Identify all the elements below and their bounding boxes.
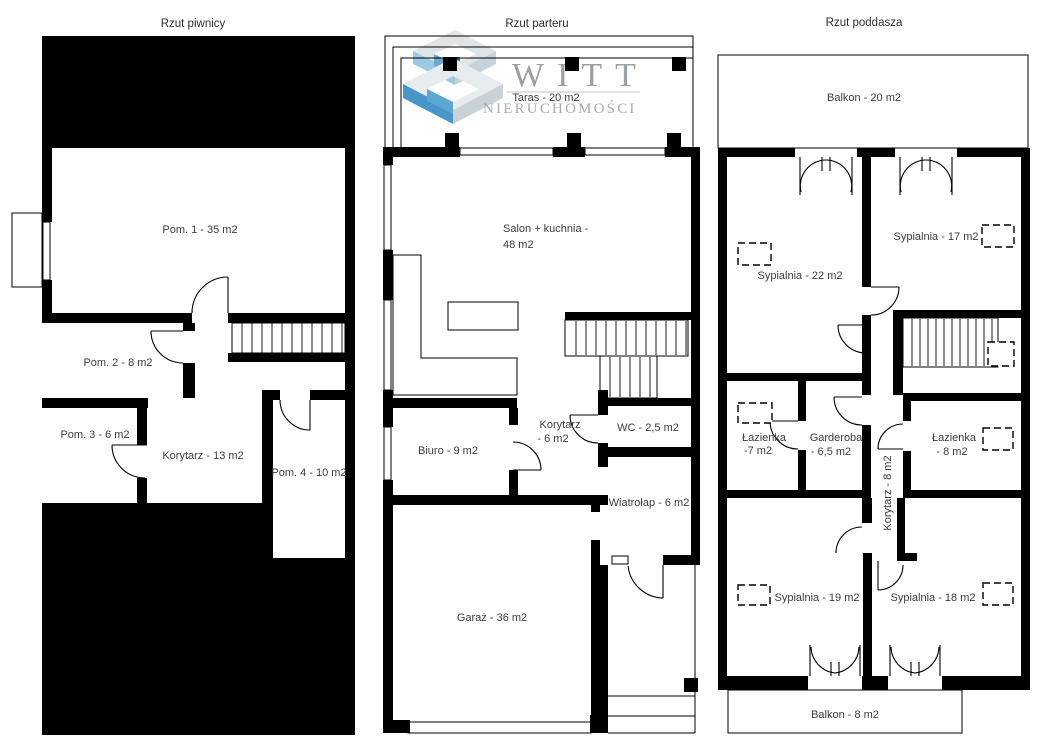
attic-skylights bbox=[738, 225, 1014, 605]
room-label-taras: Taras - 20 m2 bbox=[512, 92, 579, 104]
room-label-garderoba-line1: Garderoba bbox=[810, 432, 863, 444]
ground-title: Rzut parteru bbox=[505, 18, 568, 30]
room-label-pom1: Pom. 1 - 35 m2 bbox=[162, 224, 237, 236]
room-label-sypialnia19: Sypialnia - 19 m2 bbox=[775, 592, 860, 604]
attic-floorplan: Balkon - 20 m2 Sypialnia - 22 m2 Sypialn… bbox=[718, 55, 1030, 733]
attic-title: Rzut poddasza bbox=[826, 17, 903, 29]
basement-title: Rzut piwnicy bbox=[161, 18, 226, 30]
room-label-salon-line2: 48 m2 bbox=[503, 239, 534, 251]
ground-floorplan: Taras - 20 m2 Salon + kuchnia - 48 m2 Bi… bbox=[383, 36, 700, 733]
room-label-balkon-bottom: Balkon - 8 m2 bbox=[811, 709, 879, 721]
room-label-sypialnia22: Sypialnia - 22 m2 bbox=[758, 270, 843, 282]
witt-logo: WITT NIERUCHOMOŚCI bbox=[403, 30, 649, 124]
room-label-sypialnia17: Sypialnia - 17 m2 bbox=[894, 231, 979, 243]
room-label-garaz: Garaż - 36 m2 bbox=[457, 612, 527, 624]
floorplan-drawing: WITT NIERUCHOMOŚCI Rzut piwnicy Rzut par… bbox=[0, 0, 1047, 742]
room-label-balkon-top: Balkon - 20 m2 bbox=[827, 92, 901, 104]
room-label-korytarz8: Korytarz - 8 m2 bbox=[882, 455, 894, 530]
room-label-wc: WC - 2,5 m2 bbox=[617, 422, 679, 434]
attic-room-labels: Balkon - 20 m2 Sypialnia - 22 m2 Sypialn… bbox=[742, 92, 979, 721]
room-label-sypialnia18: Sypialnia - 18 m2 bbox=[891, 592, 976, 604]
room-label-korytarz6-line2: - 6 m2 bbox=[537, 433, 568, 445]
room-label-lazienka8-line1: Łazienka bbox=[932, 432, 977, 444]
basement-window bbox=[12, 213, 50, 287]
attic-stairs bbox=[903, 318, 998, 367]
basement-solid-masses bbox=[42, 36, 355, 735]
floorplan-page: WITT NIERUCHOMOŚCI Rzut piwnicy Rzut par… bbox=[0, 0, 1047, 742]
room-label-wiatrolap: Wiatrołap - 6 m2 bbox=[609, 497, 690, 509]
room-label-biuro: Biuro - 9 m2 bbox=[418, 445, 478, 457]
garage-door bbox=[408, 722, 591, 733]
kitchen-counter bbox=[393, 255, 518, 395]
room-label-pom4: Pom. 4 - 10 m2 bbox=[271, 467, 346, 479]
room-label-salon-line1: Salon + kuchnia - bbox=[503, 223, 589, 235]
basement-stairs bbox=[232, 323, 345, 353]
room-label-garderoba-line2: - 6,5 m2 bbox=[811, 446, 851, 458]
room-label-lazienka8-line2: - 8 m2 bbox=[936, 446, 967, 458]
room-label-korytarz13: Korytarz - 13 m2 bbox=[162, 450, 243, 462]
room-label-korytarz6-line1: Korytarz bbox=[540, 419, 581, 431]
room-label-pom2: Pom. 2 - 8 m2 bbox=[83, 357, 152, 369]
ground-stairs bbox=[565, 320, 688, 398]
entry-porch bbox=[608, 565, 695, 733]
logo-brand-text: WITT bbox=[512, 57, 649, 94]
room-label-pom3: Pom. 3 - 6 m2 bbox=[60, 429, 129, 441]
room-label-lazienka7-line2: -7 m2 bbox=[744, 445, 772, 457]
basement-floorplan: Pom. 1 - 35 m2 Pom. 2 - 8 m2 Pom. 3 - 6 … bbox=[12, 36, 355, 735]
room-label-lazienka7-line1: Łazienka bbox=[742, 432, 787, 444]
